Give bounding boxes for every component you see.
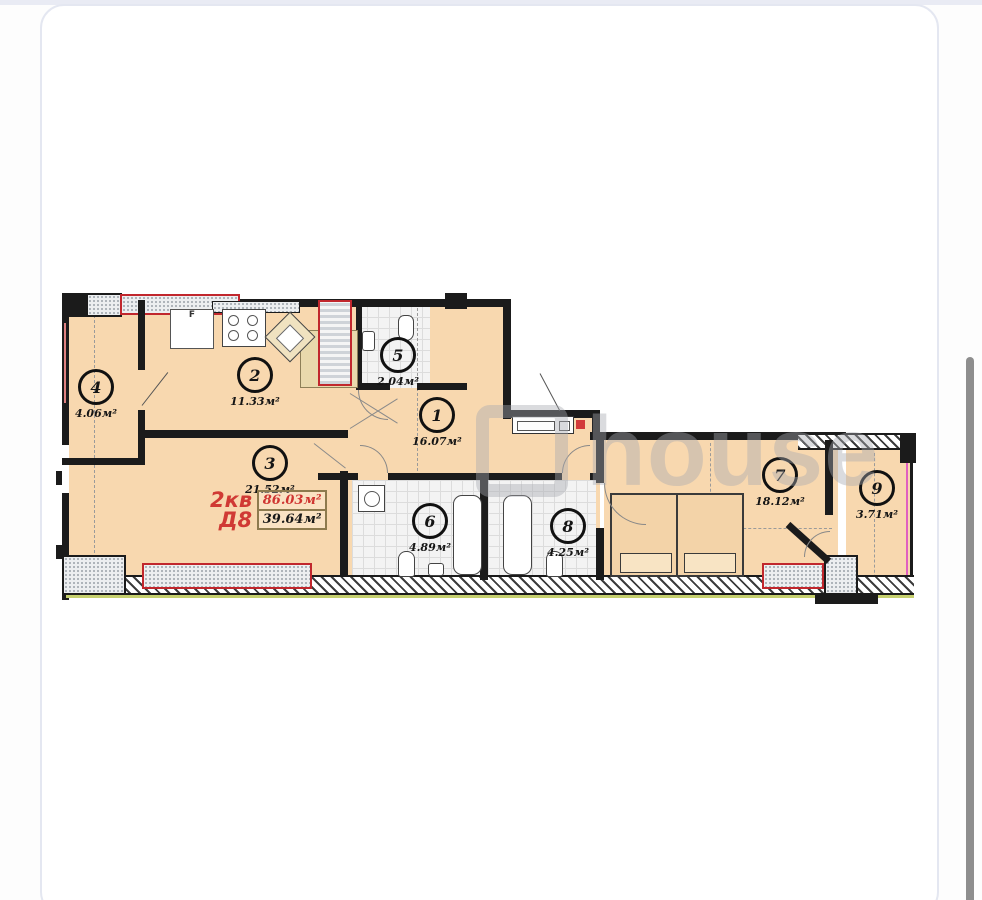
room-area: 11.33м²: [210, 395, 300, 408]
room-label-9: 9 3.71м²: [832, 470, 922, 521]
wall-hatched-top: [798, 433, 903, 450]
page: F: [0, 0, 982, 900]
wall-room2-room3: [142, 430, 348, 438]
stove-burner: [247, 330, 258, 341]
room-number-circle: 3: [252, 445, 288, 481]
entry-cabinet-box: [559, 421, 570, 431]
room-label-5: 5 2.04м²: [353, 337, 443, 388]
bed-divider: [676, 495, 678, 575]
bed-pillow: [684, 553, 736, 573]
room-area: 4.25м²: [523, 546, 613, 559]
room-label-8: 8 4.25м²: [523, 508, 613, 559]
room-number-circle: 2: [237, 357, 273, 393]
sink-basin: [276, 324, 304, 352]
wall-bedroom-left: [596, 440, 604, 483]
wall-balcony4-bottom: [62, 458, 142, 465]
room-number: 7: [774, 466, 785, 485]
vent-shaft: [318, 300, 352, 386]
axis-dashed-line: [94, 305, 95, 573]
room-number: 8: [562, 517, 573, 536]
room-area: 4.06м²: [51, 407, 141, 420]
room-label-2: 2 11.33м²: [210, 357, 300, 408]
apartment-living-area: 39.64м²: [259, 511, 325, 528]
apartment-names: 2кв Д8: [210, 490, 252, 530]
room-label-6: 6 4.89м²: [385, 503, 475, 554]
stove-burner: [247, 315, 258, 326]
room-number: 6: [424, 512, 435, 531]
room-number-circle: 9: [859, 470, 895, 506]
room-number: 2: [249, 366, 260, 385]
wall-bath-top: [318, 473, 358, 480]
toilet: [398, 551, 415, 577]
floor-plan: F: [62, 293, 922, 608]
room-number: 1: [431, 406, 442, 425]
room-number: 9: [871, 479, 882, 498]
room-label-4: 4 4.06м²: [51, 369, 141, 420]
room-area: 4.89м²: [385, 541, 475, 554]
room-area: 16.07м²: [392, 435, 482, 448]
wall-room3-right: [340, 471, 348, 575]
fridge-label: F: [189, 310, 195, 320]
fridge: F: [170, 309, 214, 349]
wall-nub: [56, 545, 64, 559]
room-number-circle: 4: [78, 369, 114, 405]
wall-column: [445, 293, 467, 309]
room-area: 18.12м²: [735, 495, 825, 508]
apartment-type-label: 2кв: [210, 490, 252, 510]
room-number: 3: [264, 454, 275, 473]
corner-pier: [62, 555, 126, 595]
room-number-circle: 6: [412, 503, 448, 539]
wall-balcony4: [138, 300, 145, 370]
facade-accent-line: [66, 595, 914, 598]
entry-cabinet-shelf: [517, 421, 555, 431]
wall-column: [62, 293, 88, 317]
bed-pillow: [620, 553, 672, 573]
entry-cabinet: [512, 416, 574, 434]
radiator-bedroom: [762, 563, 824, 589]
entry-red-marker: [576, 420, 585, 429]
washing-machine: [358, 485, 385, 512]
wall-corner-block: [900, 433, 916, 463]
room-number-circle: 8: [550, 508, 586, 544]
washing-machine-door: [364, 491, 380, 507]
wall-bath-top: [388, 473, 562, 480]
stove-burner: [228, 315, 239, 326]
stove-burner: [228, 330, 239, 341]
room-area: 3.71м²: [832, 508, 922, 521]
room-number-circle: 5: [380, 337, 416, 373]
wall-step: [815, 595, 878, 604]
apartment-label: 2кв Д8 86.03м² 39.64м²: [210, 490, 327, 530]
scrollbar-thumb[interactable]: [966, 357, 974, 900]
wall-pier: [86, 293, 122, 317]
room-label-1: 1 16.07м²: [392, 397, 482, 448]
apartment-area-box: 86.03м² 39.64м²: [257, 490, 327, 530]
room-number: 5: [392, 346, 403, 365]
room-number: 4: [90, 378, 101, 397]
room-number-circle: 7: [762, 457, 798, 493]
room-number-circle: 1: [419, 397, 455, 433]
wall-hall-right: [503, 299, 511, 419]
radiator-room3: [142, 563, 312, 589]
apartment-total-area: 86.03м²: [259, 492, 325, 511]
room-area: 2.04м²: [353, 375, 443, 388]
room-label-7: 7 18.12м²: [735, 457, 825, 508]
door-leaf-entrance: [540, 373, 561, 411]
sink: [428, 563, 444, 576]
window-left: [62, 443, 69, 495]
apartment-block-label: Д8: [210, 510, 252, 530]
stove: [222, 309, 266, 347]
